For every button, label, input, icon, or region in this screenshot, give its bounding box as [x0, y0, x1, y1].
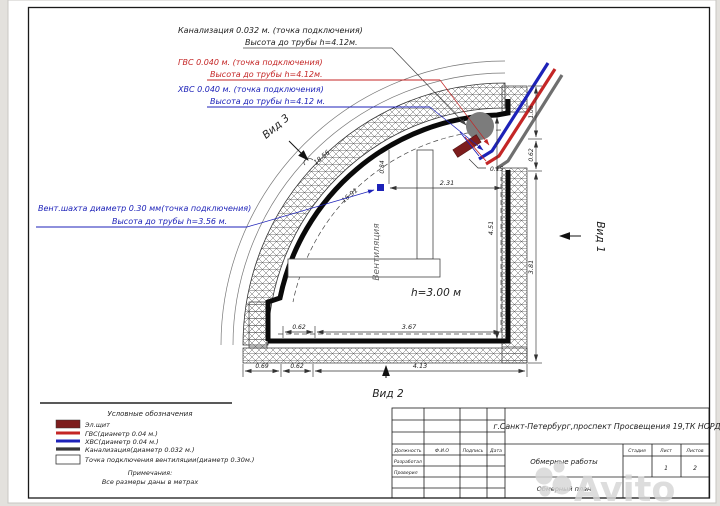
- legend-swatch-vent: [56, 455, 80, 464]
- vent-duct-horizontal: [288, 259, 440, 277]
- dim-3-67: 3.67: [402, 323, 417, 331]
- titleblock-address: г.Санкт-Петербург,проспект Просвещения 1…: [493, 422, 720, 431]
- dim-0-69: 0.69: [255, 363, 269, 370]
- avito-logo-dot-1: [536, 468, 553, 485]
- dim-3-81: 3.81: [527, 260, 535, 274]
- legend-item-cold-water: ХВС(диаметр 0.04 м.): [84, 438, 159, 446]
- dim-0-62-right: 0.62: [528, 148, 535, 162]
- vent-shaft-label: Вентиляция: [372, 223, 382, 281]
- sewer-annotation-line1: Канализация 0.032 м. (точка подключения): [178, 26, 363, 35]
- measured-plan-drawing: Вентиляция h=3.00 м: [0, 0, 720, 506]
- legend-notes: Все размеры даны в метрах: [102, 478, 199, 486]
- titleblock-sheets-label: Листов: [685, 448, 703, 454]
- dim-1-06: 1.06: [528, 105, 535, 119]
- legend-item-sewer: Канализация(диаметр 0.032 м.): [85, 446, 195, 454]
- watermark-text: Avito: [574, 470, 675, 506]
- legend-item-hot-water: ГВС(диаметр 0.04 м.): [85, 430, 158, 438]
- blueprint-page: Вентиляция h=3.00 м: [0, 0, 720, 506]
- water-heater: [466, 112, 494, 140]
- left-stub-wall: [249, 302, 267, 348]
- dim-4-13: 4.13: [413, 362, 427, 370]
- dim-2-31: 2.31: [440, 179, 454, 187]
- titleblock-col-position: Должность: [393, 448, 421, 454]
- view-2-label: Вид 2: [372, 388, 404, 400]
- view-1-label: Вид 1: [594, 221, 606, 252]
- hot-water-annotation-line1: ГВС 0.040 м. (точка подключения): [178, 58, 323, 67]
- vent-annotation-line2: Высота до трубы h=3.56 м.: [112, 217, 227, 226]
- legend-notes-title: Примечания:: [128, 469, 173, 477]
- legend-item-panel: Эл.щит: [84, 421, 110, 429]
- dim-0-62-outer: 0.62: [290, 363, 304, 370]
- legend-title: Условные обозначения: [108, 410, 193, 418]
- vent-annotation-line1: Вент.шахта диаметр 0.30 мм(точка подключ…: [38, 204, 251, 213]
- legend-item-vent: Точка подключения вентиляции(диаметр 0.3…: [85, 456, 254, 464]
- titleblock-col-name: Ф.И.О: [435, 448, 449, 454]
- avito-logo-dot-2: [554, 462, 565, 473]
- bottom-wall: [243, 348, 527, 363]
- titleblock-work-type: Обмерные работы: [530, 458, 598, 466]
- room-height-label: h=3.00 м: [411, 287, 461, 299]
- titleblock-sheet-label: Лист: [659, 448, 672, 454]
- titleblock-row-developed: Разработал: [394, 459, 422, 465]
- vent-connection-point: [377, 184, 384, 191]
- titleblock-col-date: Дата: [489, 448, 502, 454]
- dim-0-15: 0.15: [490, 166, 504, 173]
- hot-water-annotation-line2: Высота до трубы h=4.12м.: [210, 70, 323, 79]
- dim-4-51: 4.51: [487, 221, 495, 235]
- legend-swatch-panel: [56, 420, 80, 428]
- titleblock-row-checked: Проверил: [394, 470, 418, 476]
- vent-shaft-vertical: [417, 150, 433, 259]
- avito-logo-dot-4: [553, 476, 572, 495]
- dim-0-62-inner: 0.62: [292, 324, 306, 331]
- titleblock-col-sign: Подпись: [463, 448, 484, 454]
- dim-0-84: 0.84: [379, 160, 386, 174]
- cold-water-annotation-line1: ХВС 0.040 м. (точка подключения): [177, 85, 324, 94]
- avito-logo-dot-3: [540, 486, 551, 497]
- cold-water-annotation-line2: Высота до трубы h=4.12 м.: [210, 97, 325, 106]
- titleblock-sheets-value: 2: [693, 465, 697, 472]
- sewer-annotation-line2: Высота до трубы h=4.12м.: [245, 38, 358, 47]
- titleblock-stage-label: Стадия: [628, 448, 646, 454]
